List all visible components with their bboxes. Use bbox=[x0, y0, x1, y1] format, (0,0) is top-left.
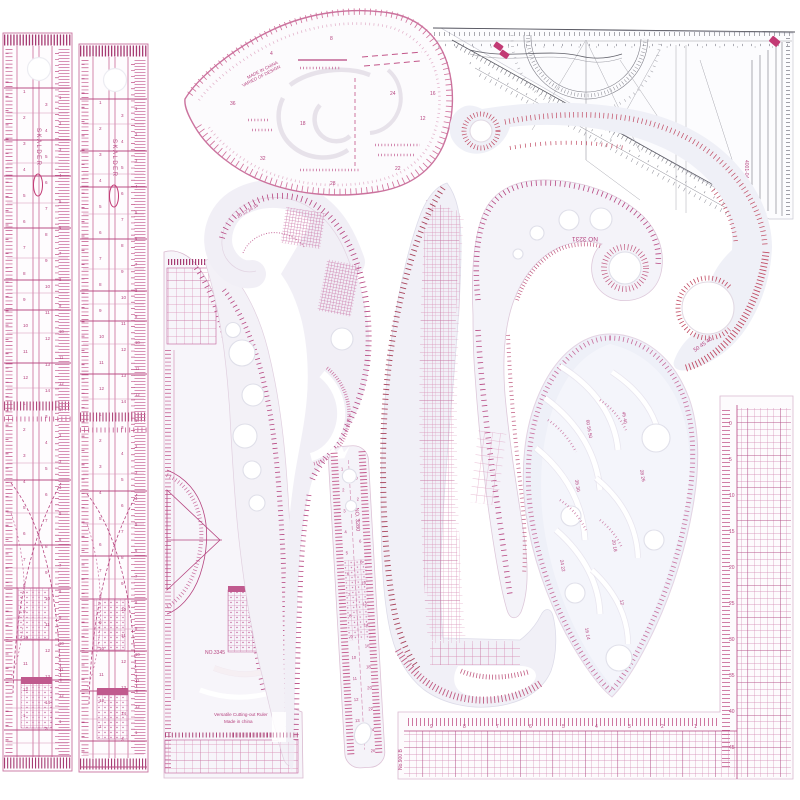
svg-text:13: 13 bbox=[121, 685, 127, 690]
svg-text:10: 10 bbox=[59, 329, 64, 334]
svg-text:9: 9 bbox=[121, 269, 124, 274]
svg-text:10: 10 bbox=[45, 596, 51, 601]
svg-text:4: 4 bbox=[99, 490, 102, 495]
svg-text:7: 7 bbox=[121, 217, 124, 222]
svg-text:12: 12 bbox=[23, 375, 29, 380]
svg-text:5: 5 bbox=[121, 165, 124, 170]
svg-text:10: 10 bbox=[135, 652, 140, 657]
svg-text:5: 5 bbox=[729, 457, 732, 463]
svg-text:Made in china: Made in china bbox=[224, 719, 253, 724]
svg-text:9: 9 bbox=[45, 258, 48, 263]
svg-text:8: 8 bbox=[330, 36, 333, 42]
svg-text:10: 10 bbox=[729, 493, 735, 499]
svg-text:6: 6 bbox=[45, 492, 48, 497]
svg-text:8: 8 bbox=[463, 724, 466, 730]
svg-text:5: 5 bbox=[99, 204, 102, 209]
svg-text:13: 13 bbox=[45, 674, 51, 679]
svg-text:9: 9 bbox=[23, 609, 26, 614]
svg-text:4: 4 bbox=[595, 724, 598, 730]
svg-text:3: 3 bbox=[23, 453, 26, 458]
svg-text:1: 1 bbox=[23, 401, 26, 406]
svg-text:NO 3231: NO 3231 bbox=[572, 235, 598, 242]
svg-text:9: 9 bbox=[121, 581, 124, 586]
svg-text:12: 12 bbox=[45, 648, 51, 653]
svg-text:2: 2 bbox=[99, 126, 102, 131]
svg-text:3: 3 bbox=[121, 737, 124, 742]
svg-text:7: 7 bbox=[23, 557, 26, 562]
svg-text:28: 28 bbox=[330, 181, 336, 187]
svg-text:1: 1 bbox=[23, 89, 26, 94]
svg-text:14: 14 bbox=[121, 711, 127, 716]
svg-text:14: 14 bbox=[45, 388, 51, 393]
svg-text:24: 24 bbox=[390, 91, 396, 97]
svg-text:22: 22 bbox=[395, 166, 401, 172]
svg-text:18: 18 bbox=[300, 121, 306, 127]
svg-text:4: 4 bbox=[121, 139, 124, 144]
svg-text:3: 3 bbox=[99, 464, 102, 469]
svg-text:3: 3 bbox=[121, 113, 124, 118]
svg-text:1: 1 bbox=[23, 713, 26, 718]
svg-text:3: 3 bbox=[45, 414, 48, 419]
svg-text:Versatile Cutting-out Ruler: Versatile Cutting-out Ruler bbox=[214, 712, 268, 717]
svg-text:11: 11 bbox=[23, 661, 28, 666]
svg-text:9: 9 bbox=[99, 620, 102, 625]
svg-text:11: 11 bbox=[45, 310, 50, 315]
svg-text:6: 6 bbox=[121, 503, 124, 508]
svg-text:4: 4 bbox=[23, 167, 26, 172]
svg-text:12: 12 bbox=[121, 659, 127, 664]
svg-text:4: 4 bbox=[99, 178, 102, 183]
svg-text:11: 11 bbox=[121, 321, 126, 326]
svg-text:32: 32 bbox=[260, 156, 266, 162]
svg-text:6: 6 bbox=[121, 191, 124, 196]
svg-text:14: 14 bbox=[45, 700, 51, 705]
svg-text:5: 5 bbox=[45, 466, 48, 471]
svg-text:12: 12 bbox=[99, 386, 105, 391]
svg-text:10: 10 bbox=[23, 323, 29, 328]
svg-text:7: 7 bbox=[496, 724, 499, 730]
svg-text:10: 10 bbox=[121, 295, 127, 300]
svg-text:8: 8 bbox=[99, 282, 102, 287]
svg-text:10: 10 bbox=[23, 635, 29, 640]
svg-text:3: 3 bbox=[628, 724, 631, 730]
svg-text:36: 36 bbox=[230, 101, 236, 107]
svg-text:4: 4 bbox=[23, 479, 26, 484]
svg-text:11: 11 bbox=[99, 360, 104, 365]
svg-text:12: 12 bbox=[99, 698, 105, 703]
svg-text:12: 12 bbox=[135, 392, 140, 397]
svg-text:3: 3 bbox=[45, 726, 48, 731]
svg-text:8: 8 bbox=[23, 583, 26, 588]
svg-text:NO.3345: NO.3345 bbox=[205, 650, 225, 656]
svg-text:8: 8 bbox=[99, 594, 102, 599]
svg-text:0: 0 bbox=[729, 421, 732, 427]
svg-text:30: 30 bbox=[729, 637, 735, 643]
svg-text:6: 6 bbox=[23, 219, 26, 224]
svg-text:3: 3 bbox=[45, 102, 48, 107]
svg-text:14: 14 bbox=[121, 399, 127, 404]
svg-text:12: 12 bbox=[121, 347, 127, 352]
svg-text:10: 10 bbox=[45, 284, 51, 289]
svg-text:7: 7 bbox=[99, 568, 102, 573]
svg-text:7: 7 bbox=[23, 245, 26, 250]
svg-text:5: 5 bbox=[99, 516, 102, 521]
svg-text:5: 5 bbox=[23, 193, 26, 198]
svg-text:10: 10 bbox=[59, 641, 64, 646]
svg-text:11: 11 bbox=[121, 633, 126, 638]
svg-text:2: 2 bbox=[99, 438, 102, 443]
svg-text:3: 3 bbox=[121, 425, 124, 430]
svg-text:15: 15 bbox=[729, 529, 735, 535]
svg-text:13: 13 bbox=[45, 362, 51, 367]
svg-text:4: 4 bbox=[270, 51, 273, 57]
svg-text:10: 10 bbox=[99, 646, 105, 651]
svg-text:8: 8 bbox=[45, 232, 48, 237]
svg-text:6: 6 bbox=[45, 180, 48, 185]
svg-text:12: 12 bbox=[135, 704, 140, 709]
svg-text:9: 9 bbox=[45, 570, 48, 575]
svg-text:1: 1 bbox=[694, 724, 697, 730]
svg-text:6: 6 bbox=[99, 542, 102, 547]
svg-text:11: 11 bbox=[45, 622, 50, 627]
svg-text:11: 11 bbox=[59, 667, 64, 672]
svg-text:4: 4 bbox=[45, 440, 48, 445]
svg-text:9: 9 bbox=[23, 297, 26, 302]
svg-text:8: 8 bbox=[121, 243, 124, 248]
svg-text:10: 10 bbox=[121, 607, 127, 612]
svg-text:6: 6 bbox=[99, 230, 102, 235]
svg-text:No.900 B: No.900 B bbox=[398, 748, 404, 770]
svg-text:4: 4 bbox=[121, 451, 124, 456]
svg-text:2: 2 bbox=[661, 724, 664, 730]
svg-text:6: 6 bbox=[23, 531, 26, 536]
svg-text:11: 11 bbox=[23, 349, 28, 354]
svg-text:SKALDER: SKALDER bbox=[111, 139, 117, 178]
svg-text:3: 3 bbox=[99, 152, 102, 157]
svg-text:1: 1 bbox=[99, 412, 102, 417]
svg-text:9: 9 bbox=[99, 308, 102, 313]
svg-text:7: 7 bbox=[45, 518, 48, 523]
svg-text:8: 8 bbox=[23, 271, 26, 276]
svg-text:11: 11 bbox=[99, 672, 104, 677]
svg-text:11: 11 bbox=[135, 366, 140, 371]
svg-text:3: 3 bbox=[23, 141, 26, 146]
svg-text:35: 35 bbox=[729, 673, 735, 679]
svg-text:11: 11 bbox=[59, 355, 64, 360]
svg-text:8: 8 bbox=[45, 544, 48, 549]
svg-text:9: 9 bbox=[430, 724, 433, 730]
svg-text:7: 7 bbox=[121, 529, 124, 534]
svg-text:11: 11 bbox=[135, 678, 140, 683]
svg-text:12: 12 bbox=[59, 693, 64, 698]
svg-text:12: 12 bbox=[45, 336, 51, 341]
svg-text:2: 2 bbox=[23, 427, 26, 432]
svg-text:20: 20 bbox=[729, 565, 735, 571]
svg-text:40: 40 bbox=[729, 709, 735, 715]
svg-text:5: 5 bbox=[121, 477, 124, 482]
svg-text:12: 12 bbox=[59, 381, 64, 386]
svg-text:12: 12 bbox=[420, 116, 426, 122]
svg-text:1: 1 bbox=[99, 724, 102, 729]
svg-text:5: 5 bbox=[23, 505, 26, 510]
svg-text:7: 7 bbox=[99, 256, 102, 261]
svg-text:25: 25 bbox=[729, 601, 735, 607]
svg-text:6: 6 bbox=[529, 724, 532, 730]
svg-text:8: 8 bbox=[121, 555, 124, 560]
svg-text:7: 7 bbox=[45, 206, 48, 211]
svg-text:SKALDER: SKALDER bbox=[35, 128, 41, 167]
svg-text:10: 10 bbox=[99, 334, 105, 339]
svg-text:2: 2 bbox=[23, 115, 26, 120]
svg-text:5: 5 bbox=[45, 154, 48, 159]
svg-text:16: 16 bbox=[430, 91, 436, 97]
svg-text:13: 13 bbox=[121, 373, 127, 378]
svg-text:45: 45 bbox=[729, 745, 735, 751]
svg-text:4: 4 bbox=[45, 128, 48, 133]
svg-text:10: 10 bbox=[135, 340, 140, 345]
svg-text:12: 12 bbox=[23, 687, 29, 692]
svg-text:1: 1 bbox=[99, 100, 102, 105]
svg-text:5: 5 bbox=[562, 724, 565, 730]
